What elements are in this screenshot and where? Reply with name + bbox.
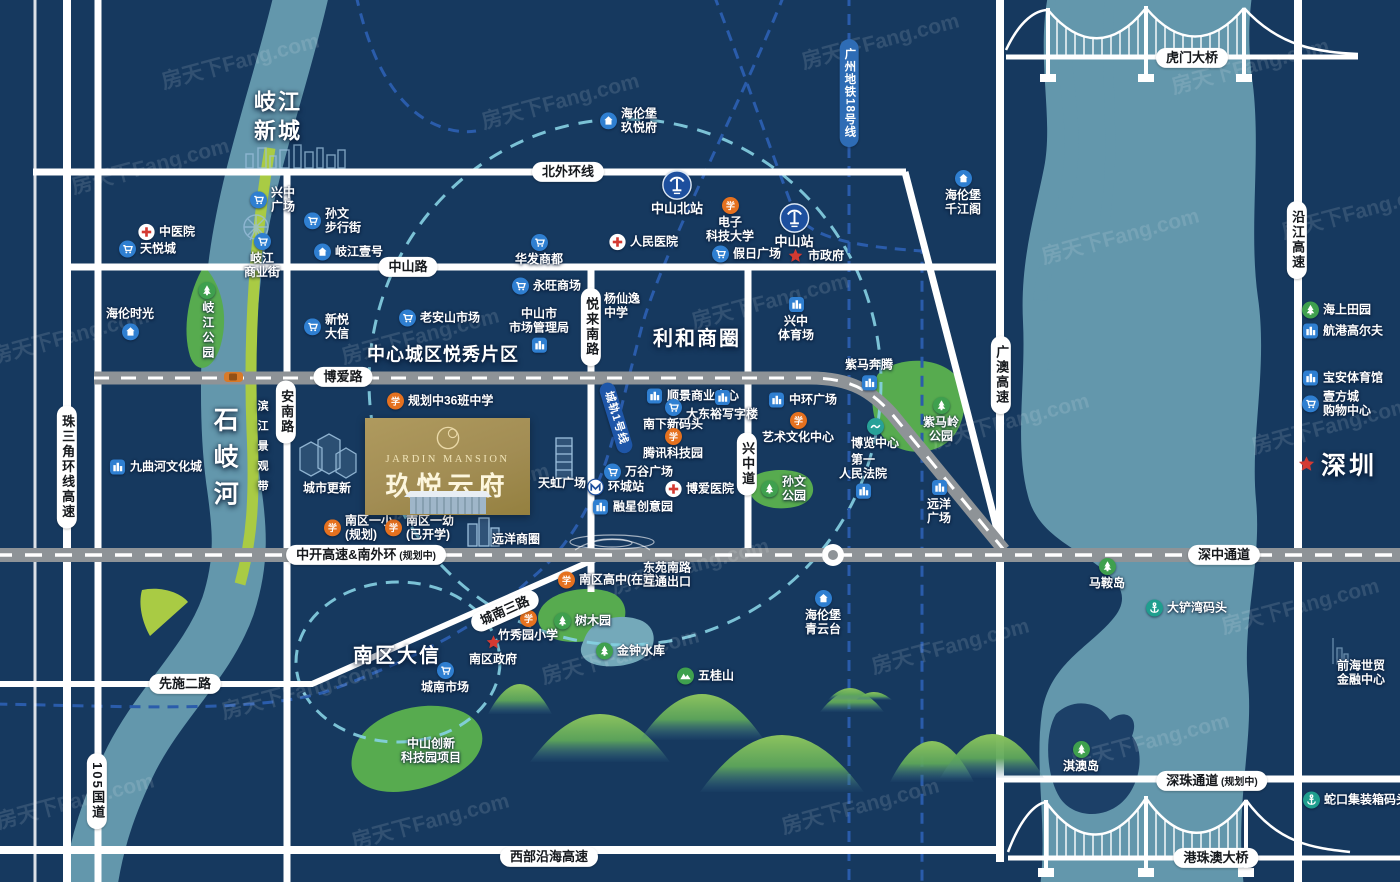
road-label: 安南路 bbox=[276, 381, 296, 444]
svg-text:学: 学 bbox=[524, 613, 533, 624]
poi-label: 宝安体育馆 bbox=[1323, 371, 1383, 385]
cart-icon bbox=[250, 192, 267, 209]
map-poi: 马鞍岛 bbox=[1089, 558, 1125, 591]
school-icon: 学 bbox=[789, 412, 806, 429]
cart-icon bbox=[664, 399, 681, 416]
star-icon bbox=[787, 248, 804, 265]
map-poi: 环城站 bbox=[587, 479, 644, 496]
watermark: 房天下Fang.com bbox=[1038, 200, 1202, 271]
watermark: 房天下Fang.com bbox=[68, 130, 232, 201]
poi-label: 南区一幼(已开学) bbox=[406, 514, 454, 541]
svg-text:学: 学 bbox=[669, 431, 678, 442]
poi-label: 假日广场 bbox=[733, 247, 781, 261]
map-poi: 天虹广场 bbox=[538, 477, 586, 491]
poi-label: 海伦堡千江阁 bbox=[945, 189, 981, 216]
area-label: 深圳 bbox=[1297, 450, 1377, 483]
poi-label: 岐江壹号 bbox=[335, 245, 383, 259]
poi-label: 兴中广场 bbox=[271, 186, 295, 213]
watermark: 房天下Fang.com bbox=[778, 770, 942, 841]
map-poi: 前海世贸金融中心 bbox=[1337, 659, 1385, 686]
park-icon bbox=[1072, 741, 1089, 758]
school-icon: 学 bbox=[721, 197, 738, 214]
poi-label: 杨仙逸中学 bbox=[604, 292, 640, 319]
poi-label: 永旺商场 bbox=[533, 279, 581, 293]
cart-icon bbox=[512, 278, 529, 295]
park-icon bbox=[596, 643, 613, 660]
map-poi: 学电子科技大学 bbox=[706, 197, 754, 243]
cart-icon bbox=[253, 233, 270, 250]
map-poi: 海伦堡青云台 bbox=[805, 590, 841, 636]
poi-label: 航港高尔夫 bbox=[1323, 324, 1383, 338]
map-poi: 华发商都 bbox=[515, 234, 563, 267]
poi-label: 海伦时光 bbox=[106, 307, 154, 321]
cart-icon bbox=[530, 234, 547, 251]
road-label: 先施二路 bbox=[149, 674, 221, 694]
park-icon bbox=[1098, 558, 1115, 575]
poi-label: 五桂山 bbox=[698, 669, 734, 683]
map-poi: 孙文步行街 bbox=[304, 207, 361, 234]
map-poi: 中山创新科技园项目 bbox=[401, 737, 461, 764]
map-poi: 岐江公园 bbox=[199, 282, 216, 361]
map-poi: 博爱医院 bbox=[665, 481, 734, 498]
poi-label: 中山市市场管理局 bbox=[509, 308, 569, 335]
svg-text:学: 学 bbox=[328, 522, 337, 533]
road-label: 博爱路 bbox=[313, 367, 372, 387]
home-icon bbox=[814, 590, 831, 607]
home-icon bbox=[314, 244, 331, 261]
road-label: 中山路 bbox=[378, 257, 437, 277]
road-label: 西部沿海高速 bbox=[500, 847, 598, 867]
poi-label: 城南市场 bbox=[421, 681, 469, 695]
station-icon bbox=[779, 203, 809, 233]
svg-text:学: 学 bbox=[562, 574, 571, 585]
road-label: 北外环线 bbox=[532, 162, 604, 182]
jardin-mansion-logo-icon bbox=[431, 423, 465, 453]
poi-label: 海上田园 bbox=[1323, 303, 1371, 317]
poi-label: 岐江公园 bbox=[200, 301, 214, 361]
area-label: 中心城区悦秀片区 bbox=[367, 343, 519, 366]
map-poi: 航港高尔夫 bbox=[1302, 323, 1383, 340]
map-poi: 中医院 bbox=[138, 224, 195, 241]
map-poi: 紫马岭公园 bbox=[923, 397, 959, 443]
landmark-icon bbox=[930, 479, 947, 496]
project-card: JARDIN MANSION 玖悦云府 bbox=[365, 418, 530, 515]
cart-icon bbox=[712, 246, 729, 263]
poi-label: 天悦城 bbox=[140, 242, 176, 256]
map-poi: 树木园 bbox=[554, 613, 611, 630]
landmark-icon bbox=[109, 459, 126, 476]
poi-label: 城市更新 bbox=[303, 482, 351, 496]
map-poi: 岐江壹号 bbox=[314, 244, 383, 261]
map-poi: 市政府 bbox=[787, 248, 844, 265]
map-poi: 宝安体育馆 bbox=[1302, 370, 1383, 387]
poi-label: 金钟水库 bbox=[617, 644, 665, 658]
poi-label: 紫马奔腾 bbox=[845, 358, 893, 372]
anchor-icon bbox=[1146, 600, 1163, 617]
map-poi: 海上田园 bbox=[1302, 302, 1371, 319]
poi-label: 人民医院 bbox=[630, 235, 678, 249]
watermark: 房天下Fang.com bbox=[868, 610, 1032, 681]
poi-label: 中山创新科技园项目 bbox=[401, 737, 461, 764]
poi-label: 马鞍岛 bbox=[1089, 577, 1125, 591]
watermark: 房天下Fang.com bbox=[158, 25, 322, 96]
map-poi: 天悦城 bbox=[119, 241, 176, 258]
poi-label: 海伦堡青云台 bbox=[805, 609, 841, 636]
poi-label: 华发商都 bbox=[515, 253, 563, 267]
map-poi: 海伦堡玖悦府 bbox=[600, 107, 657, 134]
map-poi: 金钟水库 bbox=[596, 643, 665, 660]
poi-label: 艺术文化中心 bbox=[762, 431, 834, 445]
map-poi: 城市更新 bbox=[303, 482, 351, 496]
road-label: 中开高速&南外环 (规划中) bbox=[286, 545, 446, 565]
poi-label: 兴中体育场 bbox=[778, 315, 814, 342]
landmark-icon bbox=[1302, 323, 1319, 340]
road-label: 悦来南路 bbox=[581, 288, 601, 366]
teal-icon bbox=[866, 418, 883, 435]
poi-label: 壹方城购物中心 bbox=[1323, 390, 1371, 417]
poi-label: 远洋商圈 bbox=[492, 533, 540, 547]
map-poi: 新悦大信 bbox=[304, 313, 349, 340]
landmark-icon bbox=[592, 499, 609, 516]
sales-center-illustration bbox=[400, 489, 496, 515]
poi-label: 博览中心 bbox=[851, 437, 899, 451]
road-label: 城轨1号线 bbox=[598, 381, 635, 456]
map-poi: 中山北站 bbox=[651, 170, 703, 217]
poi-label: 紫马岭公园 bbox=[923, 416, 959, 443]
hospital-icon bbox=[609, 234, 626, 251]
poi-label: 新悦大信 bbox=[325, 313, 349, 340]
poi-label: 海伦堡玖悦府 bbox=[621, 107, 657, 134]
poi-label: 中山北站 bbox=[651, 202, 703, 217]
area-label: 石岐河 bbox=[208, 407, 241, 518]
map-poi: 远洋商圈 bbox=[492, 533, 540, 547]
landmark-icon bbox=[1302, 370, 1319, 387]
poi-label: 第一人民法院 bbox=[839, 454, 887, 481]
poi-label: 前海世贸金融中心 bbox=[1337, 659, 1385, 686]
map-poi: 学规划中36班中学 bbox=[387, 393, 493, 410]
park-icon bbox=[761, 481, 778, 498]
poi-label: 大铲湾码头 bbox=[1167, 601, 1227, 615]
map-poi: 学艺术文化中心 bbox=[762, 412, 834, 445]
map-poi: 人民医院 bbox=[609, 234, 678, 251]
poi-label: 南区政府 bbox=[469, 653, 517, 667]
poi-label: 博爱医院 bbox=[686, 482, 734, 496]
poi-label: 孙文步行街 bbox=[325, 207, 361, 234]
poi-label: 电子科技大学 bbox=[706, 216, 754, 243]
road-label: 深中通道 bbox=[1188, 545, 1260, 565]
area-label: 利和商圈 bbox=[653, 326, 741, 352]
map-poi: 假日广场 bbox=[712, 246, 781, 263]
hospital-icon bbox=[665, 481, 682, 498]
poi-label: 规划中36班中学 bbox=[408, 394, 493, 408]
landmark-icon bbox=[530, 337, 547, 354]
poi-label: 万谷广场 bbox=[625, 465, 673, 479]
cart-icon bbox=[399, 310, 416, 327]
poi-label: 天虹广场 bbox=[538, 477, 586, 491]
map-poi: 紫马奔腾 bbox=[845, 358, 893, 391]
park-icon bbox=[932, 397, 949, 414]
poi-label: 远洋广场 bbox=[927, 498, 951, 525]
school-icon: 学 bbox=[387, 393, 404, 410]
svg-text:学: 学 bbox=[389, 522, 398, 533]
poi-label: 环城站 bbox=[608, 480, 644, 494]
landmark-icon bbox=[768, 392, 785, 409]
map-poi: 学南区一小(规划) bbox=[324, 514, 393, 541]
anchor-icon bbox=[1303, 792, 1320, 809]
map-poi: 孙文公园 bbox=[761, 475, 806, 502]
map-poi: 老安山市场 bbox=[399, 310, 480, 327]
map-poi: 淇澳岛 bbox=[1063, 741, 1099, 774]
road-label: 港珠澳大桥 bbox=[1173, 848, 1258, 868]
road-label: 沿江高速 bbox=[1287, 201, 1307, 279]
map-poi: 九曲河文化城 bbox=[109, 459, 202, 476]
poi-label: 东苑南路互通出口 bbox=[643, 561, 691, 588]
road-label: 深珠通道 (规划中) bbox=[1156, 771, 1267, 791]
school-icon: 学 bbox=[324, 520, 341, 537]
poi-label: 腾讯科技园 bbox=[643, 447, 703, 461]
area-label: 岐江新城 bbox=[254, 88, 302, 145]
home-icon bbox=[121, 323, 138, 340]
watermark: 房天下Fang.com bbox=[1218, 570, 1382, 641]
watermark: 房天下Fang.com bbox=[0, 765, 157, 836]
map-poi: 远洋广场 bbox=[927, 479, 951, 525]
road-label: 兴中道 bbox=[737, 433, 757, 496]
map-poi: 第一人民法院 bbox=[839, 454, 887, 500]
area-label: 滨江景观带 bbox=[255, 400, 269, 500]
station-icon bbox=[662, 170, 692, 200]
watermark: 房天下Fang.com bbox=[348, 785, 512, 856]
poi-label: 市政府 bbox=[808, 249, 844, 263]
poi-label: 融星创意园 bbox=[613, 500, 673, 514]
landmark-icon bbox=[860, 374, 877, 391]
poi-label: 岐江商业街 bbox=[244, 252, 280, 279]
cart-icon bbox=[304, 319, 321, 336]
landmark-icon bbox=[713, 389, 730, 406]
map-poi: 东苑南路互通出口 bbox=[643, 561, 691, 588]
road-label: 珠三角环线高速 bbox=[57, 406, 77, 529]
map-poi: 兴中体育场 bbox=[778, 296, 814, 342]
map-poi: 博览中心 bbox=[851, 418, 899, 451]
map-poi: 兴中广场 bbox=[250, 186, 295, 213]
map-poi: 海伦时光 bbox=[106, 307, 154, 340]
map-poi: 岐江商业街 bbox=[244, 233, 280, 279]
star-icon bbox=[1297, 450, 1316, 483]
school-icon: 学 bbox=[558, 572, 575, 589]
location-map: 房天下Fang.com房天下Fang.com房天下Fang.com房天下Fang… bbox=[0, 0, 1400, 882]
school-icon: 学 bbox=[385, 520, 402, 537]
poi-label: 老安山市场 bbox=[420, 311, 480, 325]
road-label: 105国道 bbox=[87, 753, 107, 829]
landmark-icon bbox=[787, 296, 804, 313]
star-icon bbox=[484, 634, 501, 651]
landmark-icon bbox=[854, 483, 871, 500]
map-poi: 五桂山 bbox=[677, 668, 734, 685]
map-labels-layer: 房天下Fang.com房天下Fang.com房天下Fang.com房天下Fang… bbox=[0, 0, 1400, 882]
area-label: 南区大信 bbox=[353, 643, 441, 669]
poi-label: 中环广场 bbox=[789, 393, 837, 407]
poi-label: 蛇口集装箱码头 bbox=[1324, 793, 1400, 807]
svg-text:学: 学 bbox=[726, 200, 735, 211]
map-poi: 中环广场 bbox=[768, 392, 837, 409]
road-label: 广州地铁18号线 bbox=[840, 39, 859, 147]
school-icon: 学 bbox=[664, 428, 681, 445]
map-poi: 永旺商场 bbox=[512, 278, 581, 295]
map-poi: 学腾讯科技园 bbox=[643, 428, 703, 461]
road-label: 广澳高速 bbox=[991, 336, 1011, 414]
map-poi: 大铲湾码头 bbox=[1146, 600, 1227, 617]
svg-text:学: 学 bbox=[794, 415, 803, 426]
park-icon bbox=[199, 282, 216, 299]
watermark: 房天下Fang.com bbox=[798, 5, 962, 76]
poi-label: 九曲河文化城 bbox=[130, 460, 202, 474]
road-label: 虎门大桥 bbox=[1156, 48, 1228, 68]
map-poi: 南下新码头 bbox=[643, 399, 703, 432]
poi-label: 树木园 bbox=[575, 614, 611, 628]
map-poi: 学南区一幼(已开学) bbox=[385, 514, 454, 541]
map-poi: 融星创意园 bbox=[592, 499, 673, 516]
cart-icon bbox=[304, 213, 321, 230]
metro-icon bbox=[587, 479, 604, 496]
park-icon bbox=[1302, 302, 1319, 319]
svg-text:学: 学 bbox=[391, 395, 400, 406]
home-icon bbox=[600, 113, 617, 130]
map-poi: 中山站 bbox=[774, 203, 813, 250]
poi-label: 淇澳岛 bbox=[1063, 760, 1099, 774]
home-icon bbox=[954, 170, 971, 187]
cart-icon bbox=[1302, 396, 1319, 413]
mountain-icon bbox=[677, 668, 694, 685]
project-name-en: JARDIN MANSION bbox=[386, 454, 510, 465]
map-poi: 蛇口集装箱码头 bbox=[1303, 792, 1400, 809]
watermark: 房天下Fang.com bbox=[688, 265, 852, 336]
poi-label: 孙文公园 bbox=[782, 475, 806, 502]
cart-icon bbox=[119, 241, 136, 258]
map-poi: 海伦堡千江阁 bbox=[945, 170, 981, 216]
poi-label: 中医院 bbox=[159, 225, 195, 239]
map-poi: 壹方城购物中心 bbox=[1302, 390, 1371, 417]
map-poi: 南区政府 bbox=[469, 634, 517, 667]
hospital-icon bbox=[138, 224, 155, 241]
